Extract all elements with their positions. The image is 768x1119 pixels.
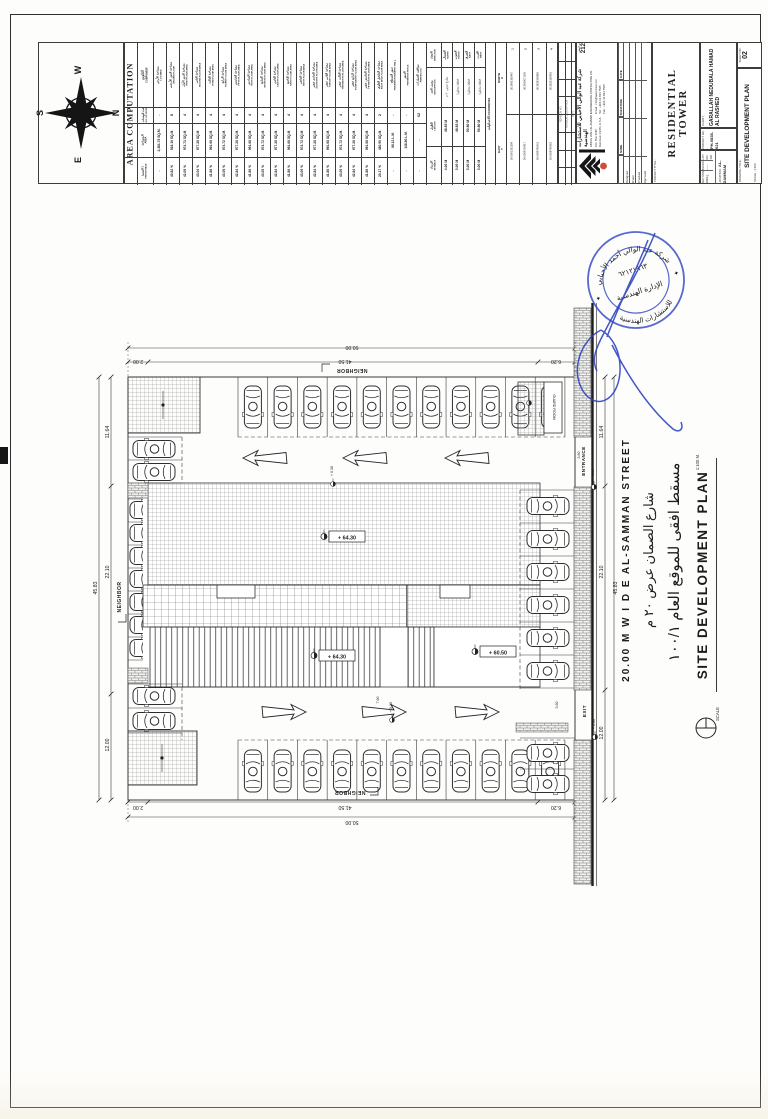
car-icon (527, 742, 569, 763)
car-icon (331, 386, 352, 428)
car-icon (391, 386, 412, 428)
car-icon (242, 750, 263, 792)
car-icon (133, 461, 175, 482)
gap-dim: 7.60 (376, 697, 380, 704)
entrance-label: ENTRANCE (581, 446, 586, 476)
level-canopy: + 60.50 (489, 651, 507, 657)
level-plinth-bottom: + 0.30 (389, 702, 393, 712)
entrance-level: + 0.00 (591, 469, 595, 479)
car-icon (450, 750, 471, 792)
street-name-ar: شارع الصمان عرض ٢٠ م (641, 492, 657, 628)
compass-w: W (73, 65, 83, 74)
plan-scale-value: 1:100 M. (695, 454, 700, 470)
dim-top-3: 6.20 (551, 358, 561, 364)
compass-e: E (73, 157, 83, 163)
dim-left-3: 12.00 (105, 738, 111, 751)
dim-right-total: 45.83 (613, 581, 619, 594)
car-icon (391, 750, 412, 792)
dim-right-3: 12.00 (599, 726, 605, 739)
svg-text:✦: ✦ (673, 270, 680, 278)
car-icon (527, 561, 569, 582)
exit-level: + 0.00 (592, 719, 596, 729)
car-icon (133, 685, 175, 706)
dim-top-total: 50.00 (345, 344, 358, 350)
car-icon (480, 750, 501, 792)
car-icon (302, 386, 323, 428)
level-plinth-top: + 0.30 (330, 466, 334, 476)
car-icon (527, 528, 569, 549)
car-icon (527, 660, 569, 681)
neighbor-bottom: NEIGHBOR (335, 789, 366, 795)
street-name-en: 20.00 M W I D E AL-SAMMAN STREET (621, 438, 632, 682)
car-icon (480, 386, 501, 428)
car-icon (331, 750, 352, 792)
compass-rose: W N E S (35, 65, 121, 163)
car-icon (242, 386, 263, 428)
car-icon (527, 594, 569, 615)
dim-bot-total: 50.00 (345, 819, 358, 825)
exit-label: EXIT (582, 705, 587, 717)
dim-top-2: 41.50 (338, 358, 351, 364)
neighbor-left: NEIGHBOR (117, 582, 123, 613)
car-icon (421, 750, 442, 792)
plan-title-ar: مسقط افقى للموقع العام ١٠٠/١ (666, 463, 683, 662)
dim-top-1: 2.00 (133, 358, 143, 364)
site-plan-drawing: W N E S (0, 0, 768, 1119)
car-icon (361, 386, 382, 428)
neighbor-top: NEIGHBOR (337, 367, 368, 373)
dim-bot-1: 2.00 (133, 804, 143, 810)
guard-room-label: GUARD ROOM (552, 394, 556, 419)
exit-aisle-dim: 3.60 (555, 702, 559, 709)
car-icon (361, 750, 382, 792)
level-roof-2: + 64.30 (328, 655, 346, 661)
car-icon (421, 386, 442, 428)
dim-left-total: 45.83 (93, 581, 99, 594)
street-title-column: 20.00 M W I D E AL-SAMMAN STREET شارع ال… (621, 438, 720, 738)
compass-n: N (111, 110, 121, 117)
car-icon (272, 750, 293, 792)
car-icon (527, 495, 569, 516)
car-icon (527, 627, 569, 648)
car-icon (527, 773, 569, 794)
scan-tint (0, 1071, 768, 1119)
car-icon (302, 750, 323, 792)
plan-scale-word: SCALE (715, 707, 720, 721)
dim-right-1: 11.64 (599, 426, 605, 439)
dim-left-2: 22.10 (105, 565, 111, 578)
dim-left-1: 11.64 (105, 426, 111, 439)
street-sidewalk (574, 303, 597, 886)
dim-right-2: 22.10 (599, 565, 605, 578)
level-roof-1: + 64.30 (338, 536, 356, 542)
dim-bot-2: 41.50 (338, 804, 351, 810)
scale-circle-icon (696, 718, 716, 738)
scanned-drawing-sheet: AREA COMPUTATIONالتكوينCOMPONENTعدد الوح… (0, 0, 768, 1119)
svg-text:✦: ✦ (595, 295, 602, 303)
dim-bot-3: 6.20 (551, 804, 561, 810)
building-mid-band (143, 585, 407, 627)
car-icon (450, 386, 471, 428)
car-icon (133, 438, 175, 459)
car-icon (133, 710, 175, 731)
compass-s: S (35, 110, 45, 116)
car-icon (272, 386, 293, 428)
plan-title-en: SITE DEVELOPMENT PLAN (695, 471, 710, 680)
entrance-aisle-dim: 3.60 (577, 452, 581, 459)
